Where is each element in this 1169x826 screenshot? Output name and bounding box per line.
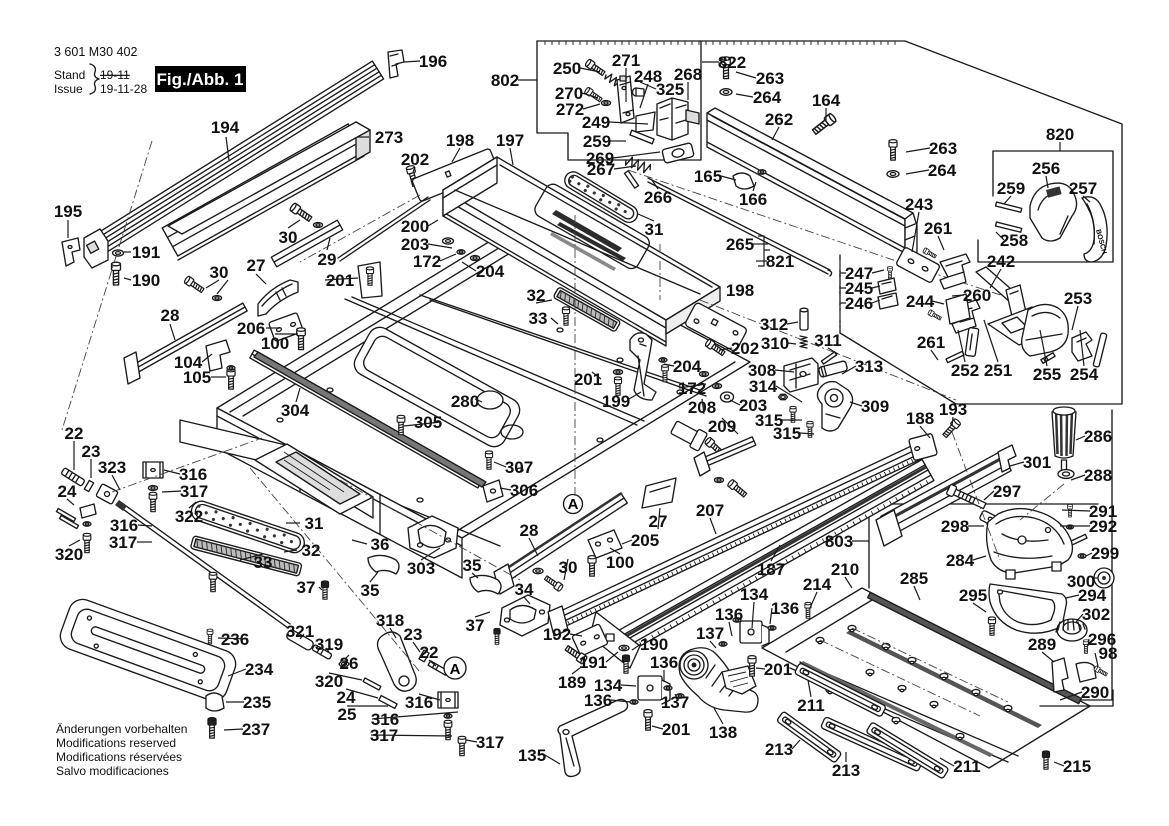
svg-text:317: 317 (476, 733, 504, 752)
svg-text:309: 309 (861, 397, 889, 416)
svg-text:290: 290 (1081, 683, 1109, 702)
svg-text:322: 322 (175, 507, 203, 526)
svg-text:29: 29 (318, 250, 337, 269)
svg-text:A: A (568, 496, 579, 513)
svg-text:312: 312 (760, 315, 788, 334)
svg-text:100: 100 (606, 553, 634, 572)
svg-text:302: 302 (1082, 605, 1110, 624)
svg-text:246: 246 (845, 294, 873, 313)
svg-text:253: 253 (1064, 289, 1092, 308)
svg-text:294: 294 (1078, 586, 1107, 605)
svg-text:136: 136 (771, 599, 799, 618)
svg-text:298: 298 (941, 517, 969, 536)
svg-text:313: 313 (855, 357, 883, 376)
svg-text:28: 28 (520, 521, 539, 540)
svg-text:286: 286 (1084, 427, 1112, 446)
svg-text:135: 135 (518, 746, 546, 765)
svg-text:265: 265 (726, 235, 754, 254)
svg-text:323: 323 (98, 458, 126, 477)
svg-text:306: 306 (510, 481, 538, 500)
svg-text:Fig./Abb. 1: Fig./Abb. 1 (157, 70, 244, 89)
svg-text:25: 25 (338, 705, 357, 724)
svg-text:19-11-28: 19-11-28 (100, 82, 147, 96)
svg-text:Stand: Stand (54, 68, 85, 82)
svg-text:195: 195 (54, 202, 82, 221)
svg-text:30: 30 (210, 263, 229, 282)
svg-text:234: 234 (245, 660, 274, 679)
svg-text:213: 213 (832, 761, 860, 780)
svg-text:299: 299 (1091, 544, 1119, 563)
svg-text:210: 210 (831, 560, 859, 579)
svg-text:295: 295 (959, 586, 987, 605)
svg-text:31: 31 (645, 220, 664, 239)
svg-text:30: 30 (279, 228, 298, 247)
svg-text:37: 37 (466, 616, 485, 635)
svg-text:820: 820 (1046, 125, 1074, 144)
svg-text:Modifications reserved: Modifications reserved (56, 736, 176, 750)
svg-text:191: 191 (579, 653, 607, 672)
svg-text:243: 243 (905, 195, 933, 214)
svg-text:187: 187 (757, 560, 785, 579)
svg-text:215: 215 (1063, 757, 1091, 776)
svg-text:304: 304 (281, 401, 310, 420)
svg-text:249: 249 (582, 113, 610, 132)
svg-text:190: 190 (640, 635, 668, 654)
svg-text:172: 172 (678, 379, 706, 398)
svg-text:37: 37 (297, 578, 316, 597)
svg-text:264: 264 (753, 88, 782, 107)
svg-text:266: 266 (644, 188, 672, 207)
svg-text:31: 31 (305, 514, 324, 533)
svg-text:35: 35 (463, 556, 482, 575)
svg-text:172: 172 (413, 252, 441, 271)
svg-text:292: 292 (1089, 517, 1117, 536)
svg-text:317: 317 (109, 533, 137, 552)
svg-text:196: 196 (419, 52, 447, 71)
svg-text:236: 236 (221, 630, 249, 649)
svg-text:35: 35 (361, 581, 380, 600)
svg-text:237: 237 (242, 720, 270, 739)
svg-text:209: 209 (708, 417, 736, 436)
svg-text:191: 191 (132, 243, 160, 262)
svg-text:A: A (450, 661, 461, 678)
svg-text:803: 803 (825, 532, 853, 551)
svg-text:288: 288 (1084, 466, 1112, 485)
svg-text:166: 166 (739, 190, 767, 209)
svg-text:3 601 M30 402: 3 601 M30 402 (54, 45, 137, 59)
svg-text:34: 34 (515, 580, 534, 599)
svg-text:307: 307 (505, 458, 533, 477)
svg-text:211: 211 (953, 757, 980, 776)
svg-text:201: 201 (326, 271, 354, 290)
svg-text:198: 198 (726, 281, 754, 300)
svg-text:318: 318 (376, 611, 404, 630)
svg-text:204: 204 (673, 357, 702, 376)
svg-text:201: 201 (662, 720, 690, 739)
svg-text:256: 256 (1032, 159, 1060, 178)
svg-text:138: 138 (709, 723, 737, 742)
svg-text:259: 259 (997, 179, 1025, 198)
svg-text:36: 36 (371, 535, 390, 554)
svg-text:188: 188 (906, 409, 934, 428)
svg-text:26: 26 (340, 654, 359, 673)
svg-text:201: 201 (574, 370, 602, 389)
svg-text:137: 137 (696, 624, 724, 643)
svg-text:198: 198 (446, 131, 474, 150)
svg-text:262: 262 (765, 110, 793, 129)
svg-text:314: 314 (749, 377, 778, 396)
svg-text:164: 164 (812, 91, 841, 110)
svg-text:137: 137 (661, 693, 689, 712)
svg-text:244: 244 (906, 292, 935, 311)
svg-text:199: 199 (602, 392, 630, 411)
svg-text:23: 23 (404, 625, 423, 644)
svg-text:272: 272 (556, 100, 584, 119)
svg-text:24: 24 (58, 482, 77, 501)
svg-text:204: 204 (476, 262, 505, 281)
svg-text:258: 258 (1000, 231, 1028, 250)
svg-text:Issue: Issue (54, 82, 83, 96)
svg-text:242: 242 (987, 252, 1015, 271)
svg-text:257: 257 (1069, 179, 1097, 198)
svg-text:100: 100 (261, 334, 289, 353)
svg-text:98: 98 (1099, 644, 1118, 663)
svg-text:317: 317 (180, 482, 208, 501)
svg-text:205: 205 (631, 531, 659, 550)
svg-text:211: 211 (797, 696, 824, 715)
svg-text:250: 250 (553, 59, 581, 78)
svg-text:213: 213 (765, 740, 793, 759)
svg-text:Modifications réservées: Modifications réservées (56, 750, 182, 764)
svg-text:273: 273 (375, 128, 403, 147)
svg-text:235: 235 (243, 693, 271, 712)
svg-text:310: 310 (761, 334, 789, 353)
svg-text:165: 165 (694, 167, 722, 186)
svg-text:136: 136 (650, 653, 678, 672)
svg-text:27: 27 (247, 256, 266, 275)
svg-text:19-11: 19-11 (100, 68, 130, 82)
svg-text:255: 255 (1033, 365, 1061, 384)
svg-text:22: 22 (65, 424, 84, 443)
svg-text:316: 316 (405, 693, 433, 712)
svg-text:260: 260 (963, 286, 991, 305)
svg-text:214: 214 (803, 575, 832, 594)
svg-text:28: 28 (161, 306, 180, 325)
svg-text:207: 207 (696, 501, 724, 520)
svg-text:280: 280 (451, 392, 479, 411)
svg-text:189: 189 (558, 673, 586, 692)
svg-text:202: 202 (731, 339, 759, 358)
svg-text:284: 284 (946, 551, 975, 570)
svg-text:202: 202 (401, 150, 429, 169)
svg-text:285: 285 (900, 569, 928, 588)
svg-text:320: 320 (55, 545, 83, 564)
svg-text:301: 301 (1023, 453, 1051, 472)
svg-text:325: 325 (656, 80, 684, 99)
svg-text:315: 315 (773, 424, 801, 443)
svg-text:Salvo modificaciones: Salvo modificaciones (56, 764, 169, 778)
svg-text:303: 303 (407, 559, 435, 578)
svg-text:263: 263 (929, 139, 957, 158)
svg-text:22: 22 (420, 643, 439, 662)
svg-text:264: 264 (928, 161, 957, 180)
svg-text:105: 105 (183, 368, 211, 387)
svg-text:197: 197 (496, 131, 524, 150)
svg-text:136: 136 (715, 605, 743, 624)
svg-text:136: 136 (584, 691, 612, 710)
svg-text:263: 263 (756, 69, 784, 88)
svg-text:251: 251 (984, 361, 1012, 380)
svg-text:134: 134 (740, 585, 769, 604)
svg-text:Änderungen vorbehalten: Änderungen vorbehalten (56, 722, 187, 736)
svg-text:190: 190 (132, 271, 160, 290)
svg-text:297: 297 (993, 482, 1021, 501)
svg-text:194: 194 (211, 118, 240, 137)
svg-text:822: 822 (718, 53, 746, 72)
svg-text:821: 821 (766, 252, 794, 271)
svg-text:311: 311 (814, 331, 841, 350)
svg-text:193: 193 (939, 400, 967, 419)
svg-text:32: 32 (302, 541, 321, 560)
svg-text:33: 33 (529, 309, 548, 328)
svg-text:261: 261 (917, 333, 945, 352)
svg-text:261: 261 (924, 219, 952, 238)
svg-text:254: 254 (1070, 365, 1099, 384)
svg-text:192: 192 (543, 625, 571, 644)
svg-text:200: 200 (401, 217, 429, 236)
svg-text:289: 289 (1028, 635, 1056, 654)
svg-text:201: 201 (764, 660, 792, 679)
svg-text:802: 802 (491, 71, 519, 90)
svg-text:267: 267 (587, 160, 615, 179)
svg-text:252: 252 (951, 361, 979, 380)
